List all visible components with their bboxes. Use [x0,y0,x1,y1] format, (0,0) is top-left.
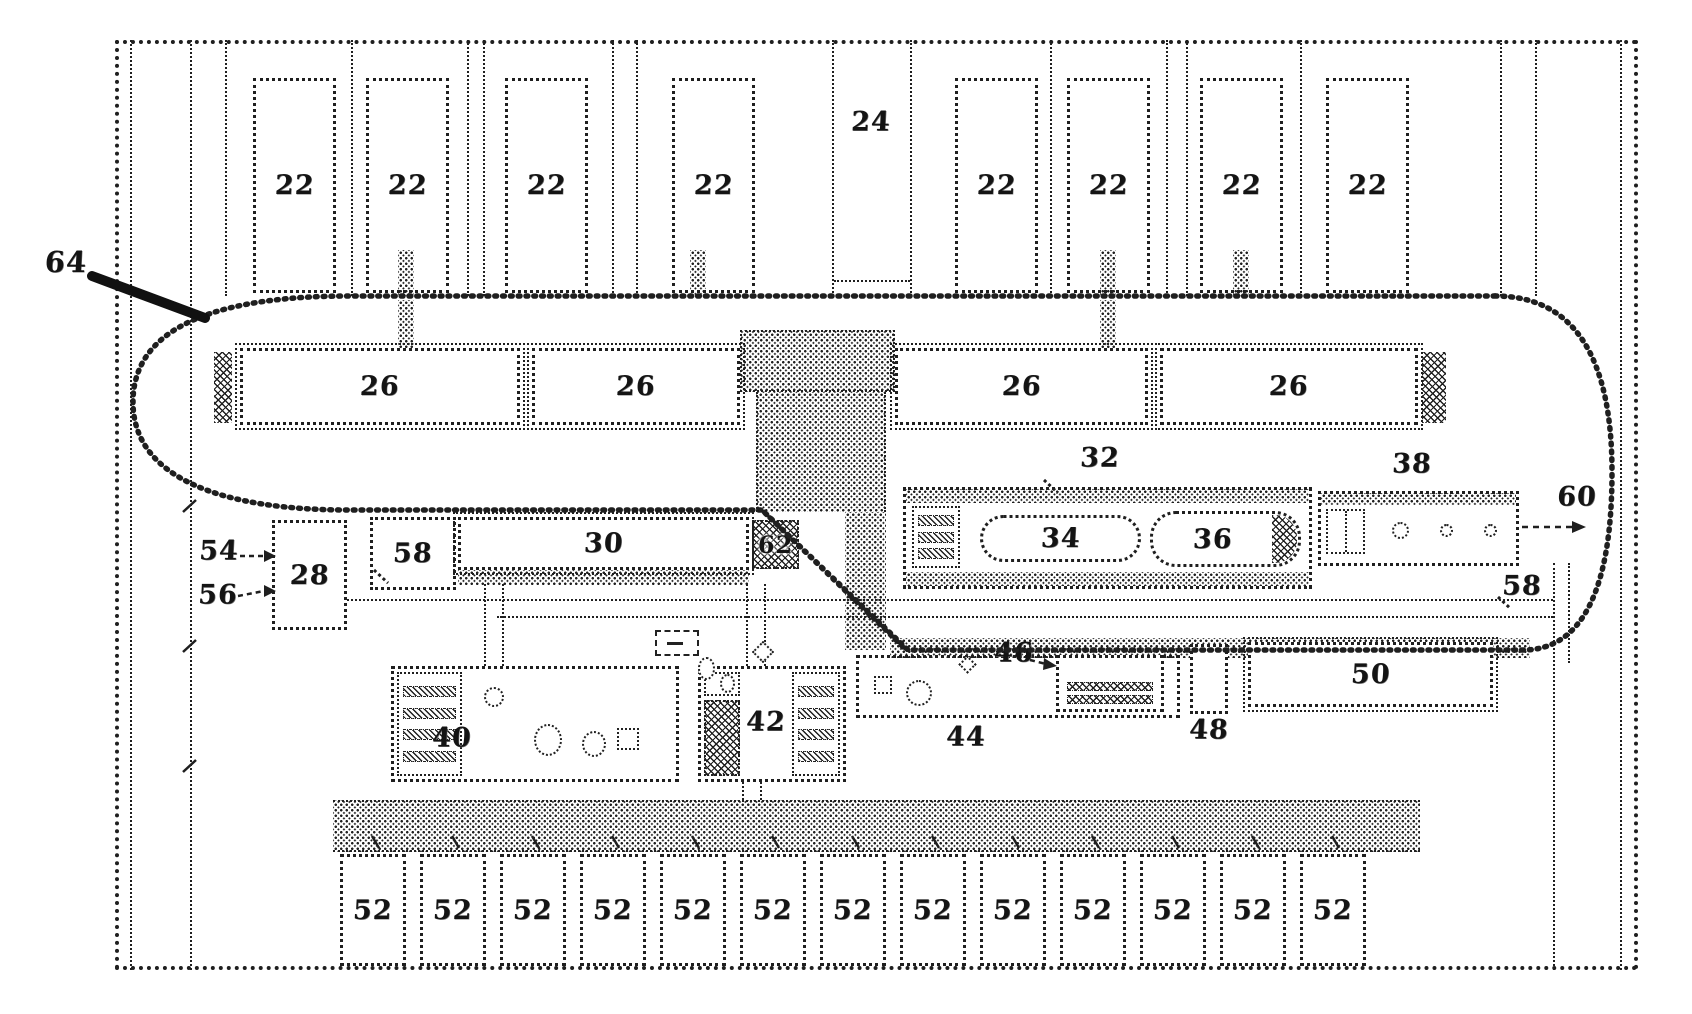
corridor-vline [502,584,504,666]
storage-bay-52-10: 52 [1060,854,1126,966]
junction-column [756,392,886,512]
rack-slot [918,548,954,559]
bay-label: 22 [693,170,734,201]
stocker-label: 26 [1268,371,1309,402]
module-46 [1056,655,1164,712]
module-34: 34 [980,515,1141,562]
bay-label: 22 [976,170,1017,201]
bay-label: 22 [1347,170,1388,201]
module-50: 50 [1248,642,1493,707]
bay-label: 52 [912,895,953,926]
storage-bay-52-5: 52 [660,854,726,966]
bay-label: 52 [512,895,553,926]
stocker-end-hatch-left [214,352,232,423]
rack-slot [1067,682,1153,691]
road-line-left [190,40,192,970]
module-label-62: 62 [757,530,794,559]
module-28: 28 [272,520,347,630]
tool-oval [698,657,715,680]
mini-box-dash [667,642,683,645]
process-bay-22-5: 22 [955,78,1038,293]
stocker-end-hatch-right [1422,352,1446,423]
corridor-line-lower [497,616,1553,618]
stocker-26-3: 26 [895,348,1148,425]
wafer-dot [1484,524,1497,537]
bay-label: 22 [526,170,567,201]
bay-label: 52 [992,895,1033,926]
street-line [1166,40,1168,296]
stocker-label: 26 [1001,371,1042,402]
road-line-right-long [1553,563,1555,970]
module-48 [1190,644,1228,714]
module-62: 62 [752,520,799,569]
module-42-rack [792,672,840,776]
storage-bay-52-6: 52 [740,854,806,966]
module-32-label: 32 [1079,443,1120,474]
bay-label: 22 [274,170,315,201]
module-38-cassette [1326,509,1365,554]
bay-connector-stub [1100,250,1116,296]
bay-label: 52 [1312,895,1353,926]
connector-vline [760,782,762,800]
rack-slot [403,686,456,697]
storage-bay-52-4: 52 [580,854,646,966]
cassette-divider [1345,511,1347,552]
bay-label: 22 [1221,170,1262,201]
rack-slot [798,708,834,719]
stocker-label: 26 [615,371,656,402]
module-30: 30 [458,517,749,570]
module-38-label: 38 [1391,449,1432,480]
storage-bay-52-8: 52 [900,854,966,966]
module-44-label: 44 [945,722,986,753]
bay-label: 52 [1152,895,1193,926]
tool-oval [720,674,735,693]
module-32-rack [912,506,960,568]
stocker-26-2: 26 [532,348,740,425]
module-label: 36 [1192,524,1233,555]
module-label: 30 [583,528,624,559]
rack-slot [918,532,954,543]
wafer-dot [1440,524,1453,537]
bay-connector-stub [690,250,706,296]
bay-label: 52 [752,895,793,926]
loop-64-label: 64 [44,245,88,279]
module-32-bottom-band [906,572,1309,586]
tool-square [617,728,639,750]
street-line [1300,40,1302,296]
stocker-26-4: 26 [1160,348,1418,425]
road-line-right-2 [1535,40,1537,296]
storage-bay-52-1: 52 [340,854,406,966]
bay-connector-stub [398,250,414,296]
tool-circle [582,731,606,757]
callout-60: 60 [1556,482,1597,513]
bay-connector-stub [1233,250,1249,296]
rack-slot [798,729,834,740]
module-40-label: 40 [431,723,472,754]
storage-bay-52-2: 52 [420,854,486,966]
wafer-dot [1392,522,1409,539]
bay-label: 52 [352,895,393,926]
stocker-connector-stub [1100,300,1116,348]
callout-58-right: 58 [1501,571,1542,602]
bay-label: 22 [387,170,428,201]
module-label: 34 [1040,523,1081,554]
bay-label: 52 [672,895,713,926]
module-48-label: 48 [1188,715,1229,746]
connector-vline [742,782,744,800]
street-line [1186,40,1188,296]
storage-bay-52-12: 52 [1220,854,1286,966]
center-aisle-bottom [834,280,910,282]
callout-54: 54 [198,536,239,567]
tool-circle [906,680,932,706]
stocker-label: 26 [359,371,400,402]
module-42-hatch-cell [704,700,740,776]
corridor-vline [746,584,748,666]
module-label: 58 [392,538,433,569]
storage-bay-52-7: 52 [820,854,886,966]
corridor-line-upper [347,599,1553,601]
street-line [636,40,638,296]
bay-label: 52 [432,895,473,926]
module-42-label: 42 [745,707,786,738]
patent-figure-canvas: 22 22 22 22 22 22 22 22 24 26 26 26 26 2… [0,0,1692,1014]
center-aisle-left-wall [832,40,834,293]
module-30-bottom-band [458,570,749,585]
callout-56: 56 [197,580,238,611]
rack-slot [403,708,456,719]
junction-column-lower [845,512,886,650]
center-aisle-label-24: 24 [850,107,891,138]
bay-label: 52 [1072,895,1113,926]
rack-slot [1067,695,1153,704]
stocker-26-1: 26 [240,348,520,425]
storage-bay-52-3: 52 [500,854,566,966]
bay-label: 52 [832,895,873,926]
module-58-left: 58 [370,517,456,590]
street-line [467,40,469,296]
tool-square [874,676,892,694]
rack-slot [798,686,834,697]
storage-bay-52-13: 52 [1300,854,1366,966]
bottom-transport-band [333,800,1420,852]
corridor-vline [484,584,486,666]
module-32-top-band [906,489,1309,503]
road-line-left-2 [225,40,227,296]
process-bay-22-4: 22 [672,78,755,293]
tool-circle [484,687,504,707]
module-label: 28 [289,560,330,591]
inner-border-left [130,40,132,970]
street-line [612,40,614,296]
bay-label: 22 [1088,170,1129,201]
bay-label: 52 [1232,895,1273,926]
rack-slot [918,515,954,526]
road-line-right-short [1568,563,1570,663]
rack-slot [798,751,834,762]
tool-circle [534,724,562,756]
street-line [483,40,485,296]
module-46-label: 46 [993,638,1034,669]
process-bay-22-3: 22 [505,78,588,293]
module-38-top-band [1321,493,1516,505]
inner-border-right [1620,40,1622,970]
storage-bay-52-11: 52 [1140,854,1206,966]
bay-label: 52 [592,895,633,926]
mini-box [655,630,699,656]
stocker-connector-stub [398,300,414,348]
street-line [351,40,353,296]
junction-cross-band [740,330,895,392]
process-bay-22-1: 22 [253,78,336,293]
center-aisle-right-wall [910,40,912,293]
road-line-right-1 [1500,40,1502,296]
storage-bay-52-9: 52 [980,854,1046,966]
module-label: 50 [1350,659,1391,690]
street-line [1050,40,1052,296]
process-bay-22-8: 22 [1326,78,1409,293]
